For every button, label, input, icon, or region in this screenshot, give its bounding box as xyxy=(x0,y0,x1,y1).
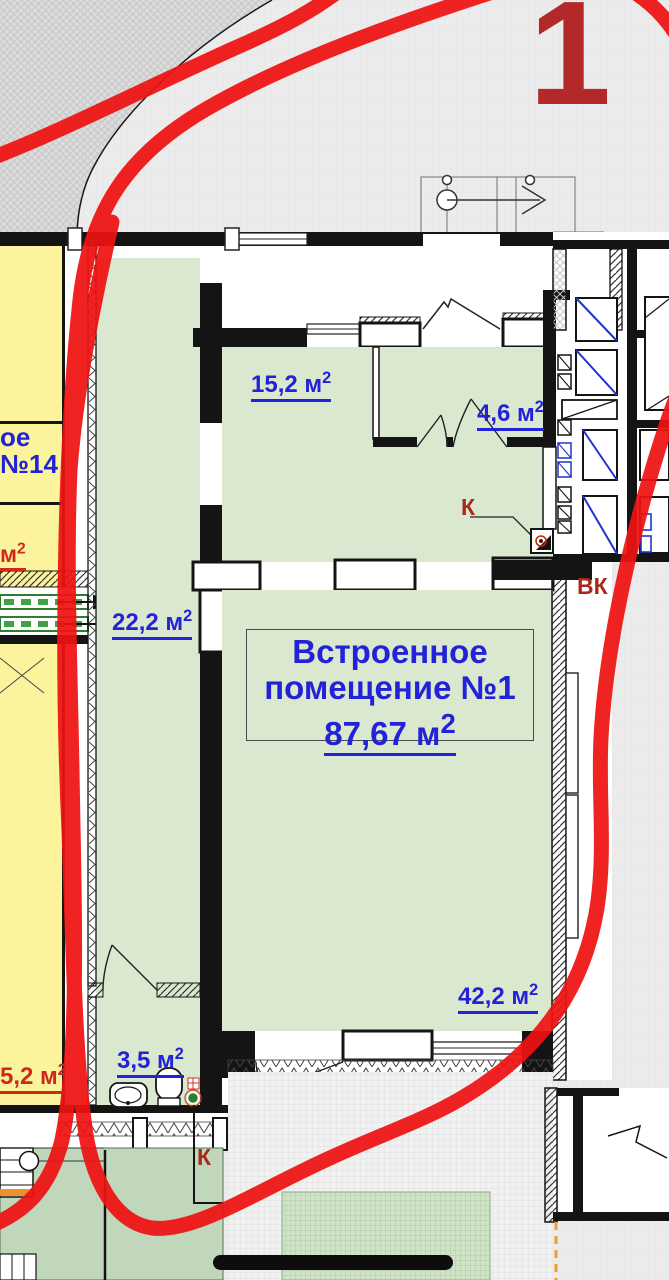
main-unit-title-line2: помещение №1 xyxy=(247,670,533,706)
window xyxy=(566,795,578,938)
left-cut-area-label: м2 xyxy=(0,541,26,566)
apartment-14-label: ое №14 xyxy=(0,424,58,479)
main-unit-label-box: Встроенное помещение №1 87,67 м2 xyxy=(246,629,534,741)
main-unit-area: 87,67 м2 xyxy=(247,706,533,752)
corridor-area-22-2: 22,2 м2 xyxy=(112,608,192,635)
water-sewer-mark: ВК xyxy=(577,574,608,598)
main-unit-title-line1: Встроенное xyxy=(247,634,533,670)
left-room-area-5-2: 5,2 м2 xyxy=(0,1062,67,1089)
scale-bar xyxy=(213,1255,453,1270)
sink xyxy=(110,1083,147,1107)
room-area-4-6: 4,6 м2 xyxy=(477,399,544,426)
room-area-15-2: 15,2 м2 xyxy=(251,370,331,397)
hall-area-42-2: 42,2 м2 xyxy=(458,982,538,1009)
sheet-number: 1 xyxy=(518,0,622,128)
floor-plan-screenshot: 1 ое №14 м2 15,2 м2 4,6 м2 22,2 м2 Встро… xyxy=(0,0,669,1280)
partition-wall xyxy=(373,347,379,439)
window xyxy=(566,673,578,793)
bathroom-area-3-5: 3,5 м2 xyxy=(117,1046,184,1073)
sewer-mark-bottom: К xyxy=(197,1145,211,1169)
sewer-mark-top: К xyxy=(461,495,475,519)
